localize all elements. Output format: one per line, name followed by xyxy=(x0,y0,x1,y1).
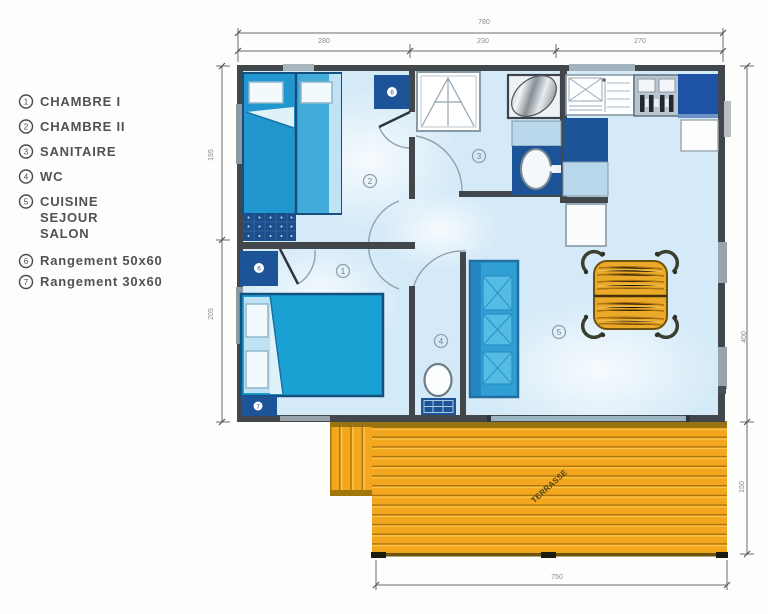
svg-text:400: 400 xyxy=(741,331,748,343)
svg-text:6: 6 xyxy=(24,257,29,266)
svg-text:5: 5 xyxy=(24,198,29,207)
svg-text:SEJOUR: SEJOUR xyxy=(40,210,98,225)
svg-text:3: 3 xyxy=(477,152,482,161)
svg-text:4: 4 xyxy=(24,173,29,182)
svg-text:195: 195 xyxy=(208,149,215,161)
svg-text:SANITAIRE: SANITAIRE xyxy=(40,144,116,159)
svg-text:780: 780 xyxy=(478,19,490,26)
svg-text:6: 6 xyxy=(257,266,261,273)
svg-text:1: 1 xyxy=(24,98,29,107)
svg-text:3: 3 xyxy=(24,148,29,157)
svg-text:5: 5 xyxy=(557,328,562,337)
svg-text:270: 270 xyxy=(634,38,646,45)
svg-text:WC: WC xyxy=(40,169,63,184)
svg-text:750: 750 xyxy=(551,574,563,581)
svg-text:205: 205 xyxy=(208,308,215,320)
svg-text:Rangement 50x60: Rangement 50x60 xyxy=(40,253,163,268)
svg-text:4: 4 xyxy=(439,337,444,346)
svg-text:1: 1 xyxy=(341,267,346,276)
svg-text:6: 6 xyxy=(390,90,394,97)
svg-text:2: 2 xyxy=(24,123,29,132)
svg-text:7: 7 xyxy=(24,278,29,287)
svg-text:150: 150 xyxy=(739,481,746,493)
svg-text:CHAMBRE I: CHAMBRE I xyxy=(40,94,121,109)
svg-text:CUISINE: CUISINE xyxy=(40,194,98,209)
svg-text:CHAMBRE II: CHAMBRE II xyxy=(40,119,125,134)
svg-text:280: 280 xyxy=(318,38,330,45)
svg-text:7: 7 xyxy=(256,404,260,411)
svg-text:2: 2 xyxy=(368,177,373,186)
svg-text:SALON: SALON xyxy=(40,226,90,241)
svg-text:230: 230 xyxy=(477,38,489,45)
svg-text:Rangement 30x60: Rangement 30x60 xyxy=(40,274,163,289)
